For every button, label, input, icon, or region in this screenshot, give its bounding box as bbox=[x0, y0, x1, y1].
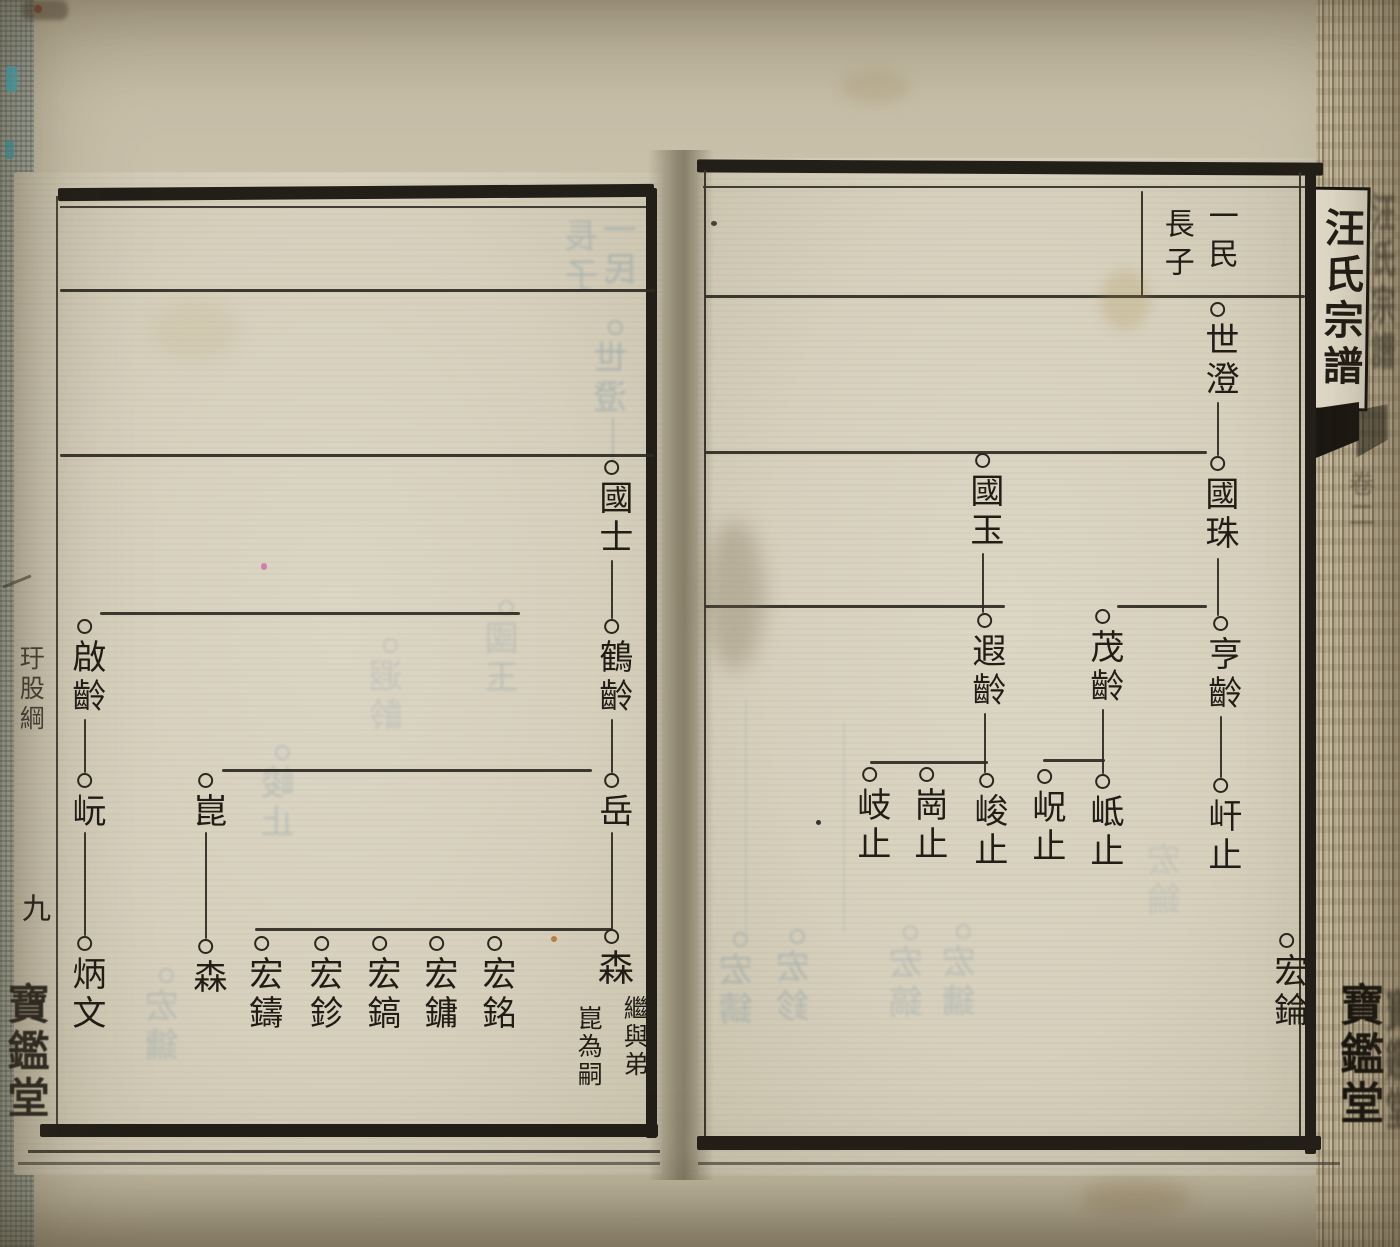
person-name: 宏鏞 bbox=[419, 956, 455, 1034]
lineage-line-horizontal bbox=[100, 612, 520, 615]
person-name: 岳 bbox=[594, 793, 630, 832]
person-node: 岳 bbox=[594, 773, 630, 832]
lineage-circle bbox=[78, 619, 93, 634]
ghost-text: 宏鑄 bbox=[722, 932, 758, 1030]
lineage-line-vertical bbox=[84, 719, 86, 773]
person-name: 世澄 bbox=[1200, 322, 1236, 400]
person-node: 森 bbox=[593, 929, 631, 990]
left-page-left-border bbox=[56, 196, 58, 1136]
left-page-edge-line bbox=[28, 1150, 660, 1153]
right-page-top-inner-line bbox=[703, 186, 1315, 188]
person-name: 屽止 bbox=[1203, 798, 1239, 876]
person-node: 國珠 bbox=[1200, 456, 1236, 554]
lineage-circle bbox=[430, 936, 445, 951]
ghost-name: 宏鎬 bbox=[892, 945, 928, 1023]
person-name: 國士 bbox=[594, 480, 630, 558]
genealogy-book-scan: 汪氏宗譜 汪氏宗譜 卷二 寶鑑堂 寶鑑堂 玗股綱 九 寶鑑堂 宏鑄宏鉁宏鎬宏鏞宏… bbox=[0, 0, 1400, 1247]
spine-title-echo-text: 汪氏宗譜 bbox=[1368, 192, 1393, 376]
lineage-circle bbox=[920, 767, 935, 782]
person-node: 岲止 bbox=[1027, 769, 1063, 867]
person-node: 宏錀 bbox=[1269, 933, 1305, 1031]
lineage-circle bbox=[1096, 774, 1111, 789]
lineage-circle bbox=[976, 453, 991, 468]
lineage-circle bbox=[863, 767, 878, 782]
ghost-circle bbox=[733, 932, 748, 947]
lineage-circle bbox=[605, 773, 620, 788]
ghost-text: 一民 bbox=[606, 212, 642, 290]
spine-hall-echo: 寶鑑堂 bbox=[1382, 988, 1400, 1135]
person-name: 宏鉁 bbox=[304, 956, 340, 1034]
ghost-name: 宏錀 bbox=[1150, 842, 1186, 920]
person-name: 岏 bbox=[67, 793, 103, 832]
lineage-circle bbox=[1211, 302, 1226, 317]
lineage-line-vertical bbox=[1217, 558, 1219, 616]
lineage-line-horizontal bbox=[1043, 759, 1105, 762]
person-name: 啟齡 bbox=[67, 639, 103, 717]
person-name: 國珠 bbox=[1200, 476, 1236, 554]
ghost-text: 宏鏞 bbox=[148, 968, 184, 1066]
ghost-name: 一民 bbox=[606, 212, 642, 290]
lineage-circle bbox=[199, 773, 214, 788]
adoption-note: 崑為嗣 bbox=[574, 1005, 600, 1089]
ghost-circle bbox=[383, 638, 398, 653]
ghost-name: 宏鉁 bbox=[779, 949, 815, 1027]
person-node: 宏鉁 bbox=[304, 936, 340, 1034]
right-page-right-border bbox=[1305, 164, 1316, 1154]
lineage-circle bbox=[978, 613, 993, 628]
lineage-line-horizontal bbox=[705, 295, 1305, 298]
spine-hall-name: 寶鑑堂 bbox=[1334, 982, 1380, 1129]
person-node: 啟齡 bbox=[67, 619, 103, 717]
lineage-line-vertical bbox=[1102, 709, 1104, 774]
right-page-left-border bbox=[704, 170, 706, 1145]
ghost-name: 國玉 bbox=[488, 620, 524, 698]
left-page-top-inner-line bbox=[60, 206, 652, 208]
adoption-note: 繼與弟 bbox=[620, 995, 646, 1079]
ghost-text: 宏鎬 bbox=[892, 925, 928, 1023]
ghost-line bbox=[612, 418, 614, 464]
lineage-circle bbox=[78, 773, 93, 788]
lineage-line-horizontal bbox=[705, 451, 1207, 454]
ghost-circle bbox=[956, 924, 971, 939]
person-name: 炳文 bbox=[67, 956, 103, 1034]
person-node: 世澄 bbox=[1200, 302, 1236, 400]
left-page-right-border bbox=[646, 188, 657, 1138]
lineage-line-horizontal bbox=[60, 289, 655, 292]
lineage-circle bbox=[315, 936, 330, 951]
lineage-line-vertical bbox=[984, 713, 986, 773]
lineage-line-horizontal bbox=[705, 605, 1005, 608]
person-name: 森 bbox=[593, 949, 631, 990]
ghost-name: 宏鏞 bbox=[945, 944, 981, 1022]
person-name: 宏銘 bbox=[477, 956, 513, 1034]
lineage-line-vertical bbox=[611, 832, 613, 929]
person-node: 茂齡 bbox=[1085, 609, 1121, 707]
red-speck bbox=[34, 5, 42, 13]
ghost-circle bbox=[903, 925, 918, 940]
ghost-text: 宏鉁 bbox=[779, 929, 815, 1027]
person-node: 宏鑄 bbox=[244, 936, 280, 1034]
lineage-circle bbox=[1214, 778, 1229, 793]
ghost-text: 宏錀 bbox=[1150, 842, 1186, 920]
lineage-line-vertical bbox=[84, 832, 86, 936]
paper-stain bbox=[840, 70, 910, 104]
person-node: 亨齡 bbox=[1203, 616, 1239, 714]
person-name: 宏鑄 bbox=[244, 956, 280, 1034]
ghost-circle bbox=[790, 929, 805, 944]
lineage-line-horizontal bbox=[1117, 605, 1207, 608]
person-node: 宏銘 bbox=[477, 936, 513, 1034]
ghost-circle bbox=[275, 745, 290, 760]
ghost-text: 世澄 bbox=[597, 320, 633, 418]
lineage-line-vertical bbox=[982, 553, 984, 613]
ghost-line bbox=[843, 722, 845, 932]
lineage-circle bbox=[1038, 769, 1053, 784]
lineage-circle bbox=[255, 936, 270, 951]
lineage-circle bbox=[605, 619, 620, 634]
lineage-line-vertical bbox=[611, 560, 613, 619]
ghost-text: 遐齡 bbox=[372, 638, 408, 736]
person-name: 遐齡 bbox=[967, 633, 1003, 711]
lineage-circle bbox=[605, 460, 620, 475]
ghost-circle bbox=[608, 320, 623, 335]
right-page-bottom-border bbox=[697, 1136, 1321, 1150]
lineage-line-horizontal bbox=[222, 769, 592, 772]
person-name: 宏鎬 bbox=[362, 956, 398, 1034]
person-name: 鶴齡 bbox=[594, 639, 630, 717]
paper-stain bbox=[1080, 1180, 1190, 1216]
ghost-text: 宏鏞 bbox=[945, 924, 981, 1022]
person-name: 宏錀 bbox=[1269, 953, 1305, 1031]
person-name: 岲止 bbox=[1027, 789, 1063, 867]
lineage-circle bbox=[1214, 616, 1229, 631]
lineage-circle bbox=[1280, 933, 1295, 948]
person-name: 森 bbox=[188, 959, 224, 998]
person-node: 岻止 bbox=[1085, 774, 1121, 872]
spine-title-cartouche: 汪氏宗譜 bbox=[1309, 187, 1370, 412]
lineage-line-vertical bbox=[1217, 402, 1219, 456]
lineage-line-vertical bbox=[205, 832, 207, 939]
person-node: 國玉 bbox=[965, 453, 1001, 551]
ghost-name: 世澄 bbox=[597, 340, 633, 418]
person-name: 茂齡 bbox=[1085, 629, 1121, 707]
lineage-circle bbox=[199, 939, 214, 954]
person-node: 峻止 bbox=[969, 773, 1005, 871]
lineage-line-horizontal bbox=[255, 928, 613, 931]
person-name: 岐止 bbox=[852, 787, 888, 865]
lineage-circle bbox=[488, 936, 503, 951]
person-node: 炳文 bbox=[67, 936, 103, 1034]
ghost-line bbox=[745, 700, 747, 935]
ghost-text: 峻止 bbox=[264, 745, 300, 843]
spine-title: 汪氏宗譜 bbox=[1318, 207, 1363, 392]
generation-header-label: 長子 bbox=[1160, 208, 1192, 284]
ghost-name: 長子 bbox=[568, 218, 604, 296]
person-name: 崗止 bbox=[909, 787, 945, 865]
person-node: 岐止 bbox=[852, 767, 888, 865]
person-node: 宏鏞 bbox=[419, 936, 455, 1034]
lineage-circle bbox=[1096, 609, 1111, 624]
lineage-circle bbox=[1211, 456, 1226, 471]
lineage-circle bbox=[78, 936, 93, 951]
person-name: 崑 bbox=[188, 793, 224, 832]
person-node: 遐齡 bbox=[967, 613, 1003, 711]
right-page-edge-line bbox=[698, 1162, 1340, 1165]
left-page-bottom-border bbox=[40, 1124, 658, 1137]
ghost-circle bbox=[159, 968, 174, 983]
ghost-name: 峻止 bbox=[264, 765, 300, 843]
person-node: 國士 bbox=[594, 460, 630, 558]
person-node: 崗止 bbox=[909, 767, 945, 865]
ghost-name: 宏鑄 bbox=[722, 952, 758, 1030]
lineage-line-horizontal bbox=[870, 761, 988, 764]
ghost-name: 遐齡 bbox=[372, 658, 408, 736]
lineage-line-vertical bbox=[611, 719, 613, 773]
person-node: 森 bbox=[188, 939, 224, 998]
generation-header-label: 一民 bbox=[1204, 200, 1236, 276]
banxin-hall-name: 寶鑑堂 bbox=[2, 982, 46, 1123]
person-node: 岏 bbox=[67, 773, 103, 832]
ghost-name: 宏鏞 bbox=[148, 988, 184, 1066]
person-name: 亨齡 bbox=[1203, 636, 1239, 714]
left-page-edge-line bbox=[18, 1162, 660, 1165]
spine-title-echo: 汪氏宗譜 bbox=[1368, 192, 1393, 376]
banxin-page-number: 九 bbox=[18, 893, 48, 927]
lineage-circle bbox=[980, 773, 995, 788]
person-name: 岻止 bbox=[1085, 794, 1121, 872]
ghost-text: 長子 bbox=[568, 218, 604, 296]
banxin-section-title: 玗股綱 bbox=[16, 645, 42, 735]
lineage-line-vertical bbox=[1220, 716, 1222, 778]
lineage-line-horizontal bbox=[60, 454, 654, 457]
lineage-circle bbox=[373, 936, 388, 951]
person-node: 崑 bbox=[188, 773, 224, 832]
person-name: 國玉 bbox=[965, 473, 1001, 551]
person-node: 屽止 bbox=[1203, 778, 1239, 876]
lineage-circle bbox=[604, 929, 619, 944]
person-node: 宏鎬 bbox=[362, 936, 398, 1034]
person-name: 峻止 bbox=[969, 793, 1005, 871]
spine-volume-mark: 卷二 bbox=[1346, 470, 1373, 532]
ghost-text: 國玉 bbox=[488, 600, 524, 698]
person-node: 鶴齡 bbox=[594, 619, 630, 717]
lineage-line-vertical bbox=[1141, 191, 1143, 296]
